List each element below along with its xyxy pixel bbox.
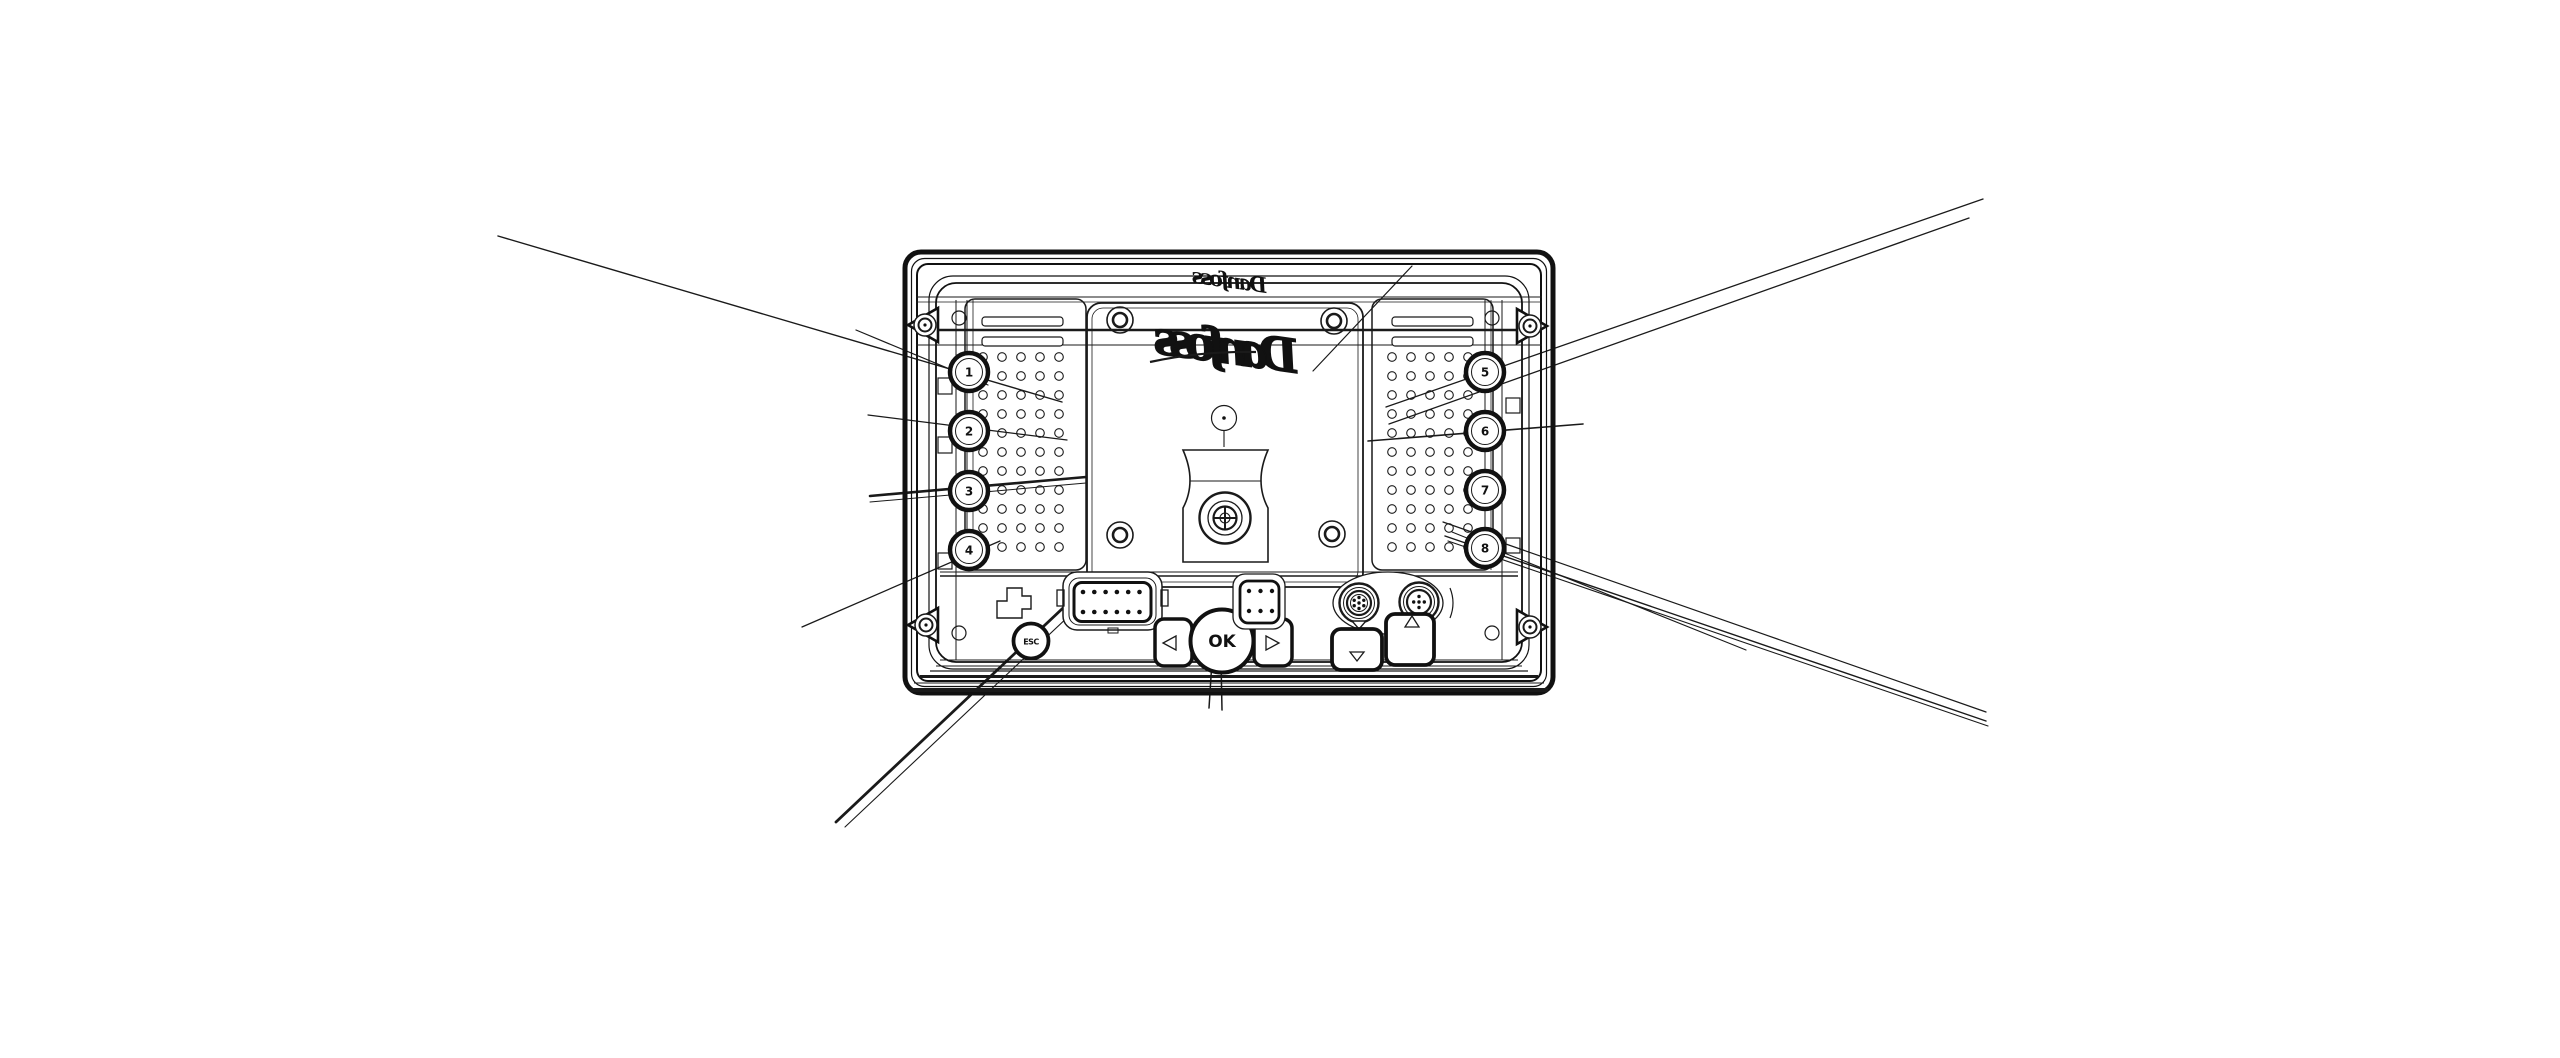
grille-hole <box>1426 486 1435 495</box>
left-key-2-label: 2 <box>965 425 973 439</box>
grille-hole <box>1445 353 1454 362</box>
left-key-1: 1 <box>950 353 988 391</box>
grille-hole <box>1017 429 1026 438</box>
grille-right-holes <box>1388 353 1473 552</box>
grille-hole <box>1055 353 1064 362</box>
down-arrow-button <box>1332 629 1382 670</box>
right-key-8-label: 8 <box>1481 542 1489 556</box>
rear-view-technical-drawing: Danfoss Danfoss 1 2 3 4 5 <box>0 0 2560 1058</box>
grille-hole <box>1388 524 1397 533</box>
grille-hole <box>1445 543 1454 552</box>
danfoss-logo-top: Danfoss <box>1190 263 1270 298</box>
grille-hole <box>1017 410 1026 419</box>
grille-hole <box>1388 410 1397 419</box>
grille-hole <box>1017 543 1026 552</box>
corner-screw-bottom-right <box>1485 610 1547 644</box>
grille-hole <box>998 353 1007 362</box>
grille-hole <box>979 391 988 400</box>
grille-hole <box>1017 486 1026 495</box>
mounting-clip <box>997 588 1031 618</box>
grille-hole <box>1407 467 1416 476</box>
esc-button: ESC <box>1014 624 1049 659</box>
grille-hole <box>998 448 1007 457</box>
grille-hole <box>979 524 988 533</box>
grille-hole <box>1055 486 1064 495</box>
grille-hole <box>998 467 1007 476</box>
grille-hole <box>998 410 1007 419</box>
grille-hole <box>1055 410 1064 419</box>
grille-hole <box>1388 543 1397 552</box>
grille-hole <box>1388 353 1397 362</box>
right-key-8: 8 <box>1466 529 1504 567</box>
grille-hole <box>1036 410 1045 419</box>
grille-hole <box>1407 543 1416 552</box>
grille-hole <box>1036 524 1045 533</box>
left-key-3: 3 <box>950 472 988 510</box>
mounting-bracket <box>1183 450 1268 562</box>
grille-hole <box>1407 353 1416 362</box>
danfoss-logo-top-text: Danfoss <box>1190 263 1270 298</box>
grille-hole <box>1464 448 1473 457</box>
grille-hole <box>1036 448 1045 457</box>
grille-hole <box>1426 505 1435 514</box>
right-key-5: 5 <box>1466 353 1504 391</box>
grille-hole <box>1407 410 1416 419</box>
grille-hole <box>1426 410 1435 419</box>
grille-hole <box>1388 429 1397 438</box>
grille-hole <box>1426 467 1435 476</box>
grille-hole <box>1445 391 1454 400</box>
right-key-5-label: 5 <box>1481 366 1489 380</box>
aux-connector-6pin <box>1233 574 1285 629</box>
grille-left-holes <box>979 353 1064 552</box>
grille-hole <box>1017 372 1026 381</box>
grille-hole <box>1036 543 1045 552</box>
danfoss-logo-large-text: Danfoss <box>1150 310 1304 384</box>
left-key-4: 4 <box>950 531 988 569</box>
grille-hole <box>1388 486 1397 495</box>
right-key-6: 6 <box>1466 412 1504 450</box>
drawing-canvas: Danfoss Danfoss 1 2 3 4 5 <box>0 0 2560 1058</box>
grille-hole <box>1036 505 1045 514</box>
right-key-7-label: 7 <box>1481 484 1489 498</box>
ok-button-label: OK <box>1208 632 1236 652</box>
up-arrow-button <box>1386 614 1434 665</box>
grille-hole <box>1407 448 1416 457</box>
grille-hole <box>1055 543 1064 552</box>
grille-hole <box>1055 524 1064 533</box>
grille-hole <box>1055 448 1064 457</box>
center-alignment-mark <box>1212 406 1237 448</box>
danfoss-logo-large: Danfoss <box>1150 310 1304 384</box>
main-connector-12pin <box>1057 572 1168 633</box>
left-key-2: 2 <box>950 412 988 450</box>
grille-hole <box>1407 372 1416 381</box>
grille-hole <box>1017 524 1026 533</box>
grille-hole <box>998 543 1007 552</box>
grille-hole <box>1407 524 1416 533</box>
grille-hole <box>1017 353 1026 362</box>
grille-hole <box>1426 353 1435 362</box>
grille-hole <box>1388 467 1397 476</box>
left-key-3-label: 3 <box>965 485 973 499</box>
grille-hole <box>1426 448 1435 457</box>
grille-hole <box>998 372 1007 381</box>
grille-hole <box>1426 524 1435 533</box>
grille-hole <box>1036 353 1045 362</box>
grille-hole <box>1445 486 1454 495</box>
grille-hole <box>998 524 1007 533</box>
grille-hole <box>998 429 1007 438</box>
left-arrow-button <box>1155 619 1192 666</box>
grille-hole <box>1036 467 1045 476</box>
grille-hole <box>1055 505 1064 514</box>
corner-screw-top-right <box>1485 309 1547 343</box>
esc-button-label: ESC <box>1023 638 1039 647</box>
grille-hole <box>1017 467 1026 476</box>
grille-hole <box>1445 524 1454 533</box>
grille-hole <box>1426 543 1435 552</box>
grille-hole <box>1426 372 1435 381</box>
grille-hole <box>1036 372 1045 381</box>
left-key-1-label: 1 <box>965 366 973 380</box>
grille-hole <box>1445 429 1454 438</box>
grille-hole <box>1445 448 1454 457</box>
grille-hole <box>1017 505 1026 514</box>
grille-hole <box>1388 391 1397 400</box>
grille-hole <box>1017 448 1026 457</box>
grille-hole <box>1445 372 1454 381</box>
grille-hole <box>1407 429 1416 438</box>
grille-hole <box>1445 410 1454 419</box>
grille-hole <box>1445 467 1454 476</box>
grille-hole <box>1388 448 1397 457</box>
right-key-7: 7 <box>1466 471 1504 509</box>
grille-hole <box>1055 429 1064 438</box>
left-key-4-label: 4 <box>965 544 973 558</box>
grille-hole <box>1055 467 1064 476</box>
grille-hole <box>1017 391 1026 400</box>
grille-hole <box>1407 505 1416 514</box>
grille-hole <box>998 391 1007 400</box>
grille-hole <box>1407 486 1416 495</box>
grille-hole <box>1388 372 1397 381</box>
grille-hole <box>1055 391 1064 400</box>
grille-hole <box>998 505 1007 514</box>
right-key-6-label: 6 <box>1481 425 1489 439</box>
grille-hole <box>1388 505 1397 514</box>
grille-hole <box>1445 505 1454 514</box>
grille-hole <box>1055 372 1064 381</box>
